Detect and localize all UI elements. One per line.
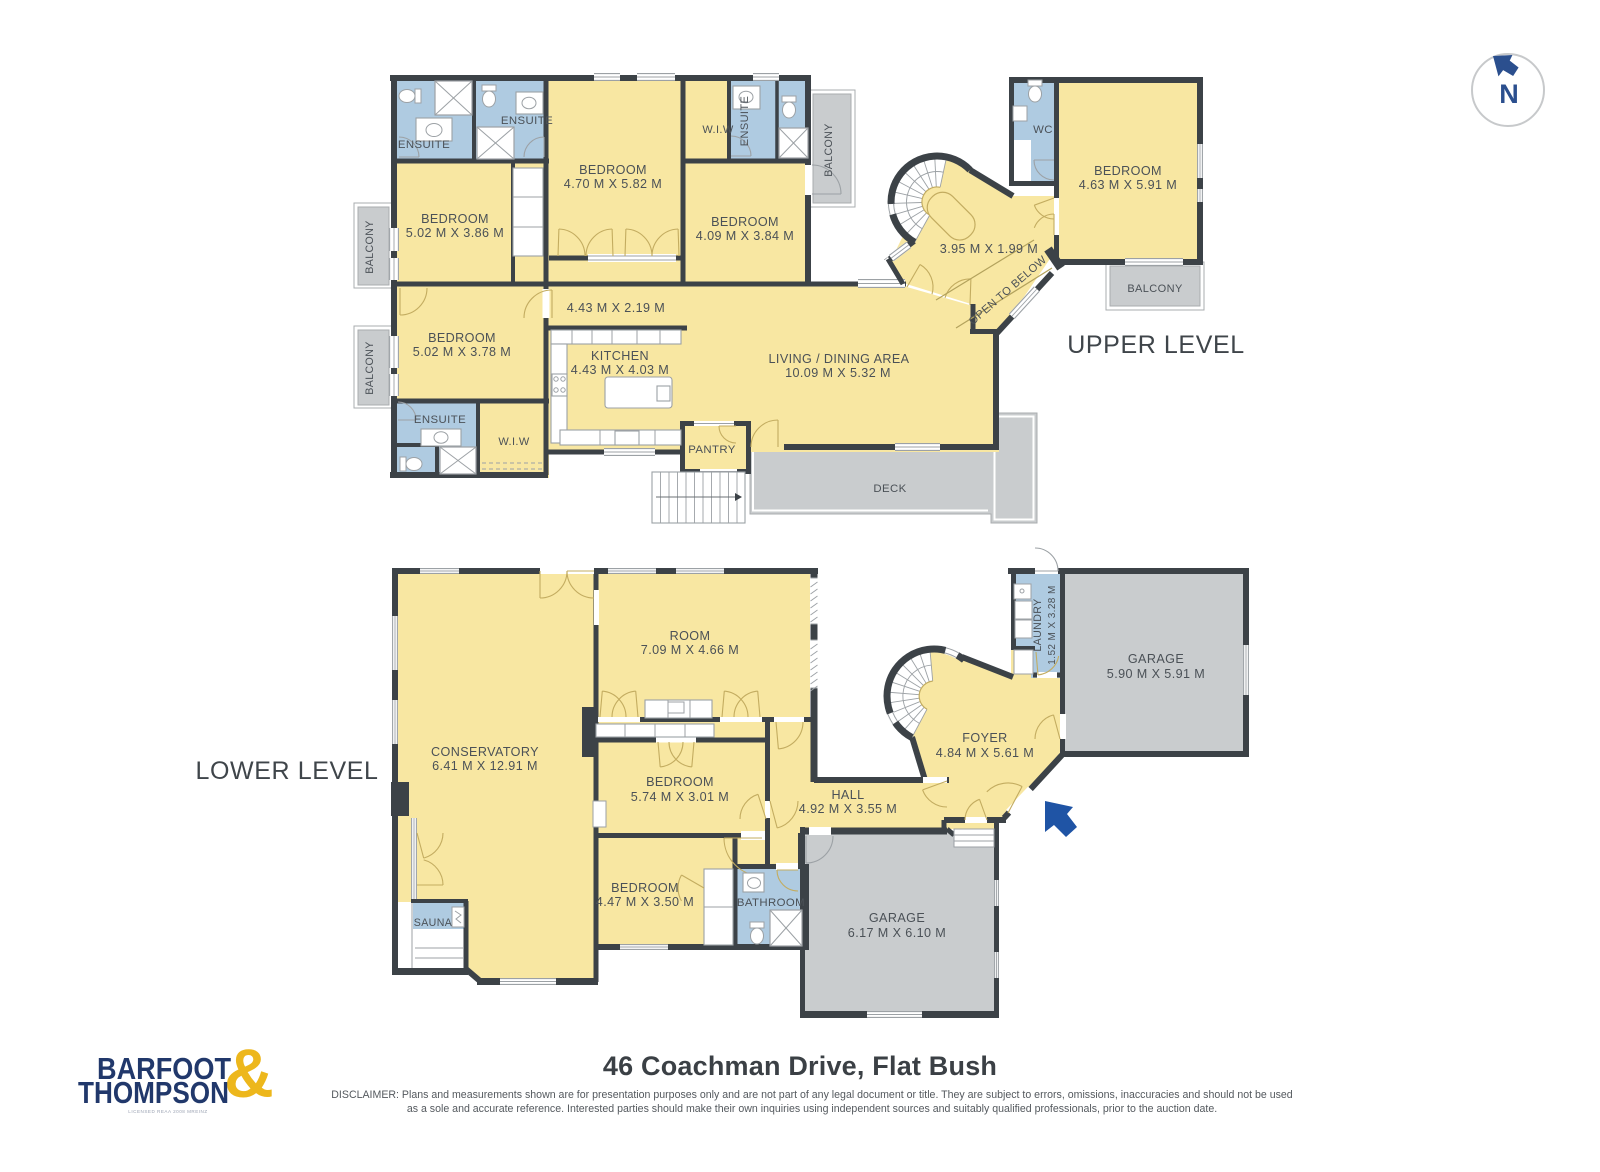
- svg-text:W.I.W: W.I.W: [702, 124, 734, 136]
- svg-text:KITCHEN: KITCHEN: [591, 349, 649, 363]
- svg-text:THOMPSON: THOMPSON: [78, 1075, 229, 1110]
- svg-text:HALL: HALL: [831, 788, 864, 802]
- svg-text:7.09 M X 4.66 M: 7.09 M X 4.66 M: [641, 643, 739, 657]
- svg-text:BEDROOM: BEDROOM: [428, 331, 496, 345]
- svg-text:BALCONY: BALCONY: [1127, 283, 1183, 295]
- svg-text:LOWER LEVEL: LOWER LEVEL: [195, 757, 378, 785]
- svg-text:BEDROOM: BEDROOM: [611, 881, 679, 895]
- svg-text:N: N: [1499, 79, 1519, 109]
- svg-text:4.43 M X 4.03 M: 4.43 M X 4.03 M: [571, 363, 669, 377]
- svg-text:6.17 M X 6.10 M: 6.17 M X 6.10 M: [848, 926, 946, 940]
- svg-text:4.47 M X 3.50 M: 4.47 M X 3.50 M: [596, 895, 694, 909]
- svg-text:BATHROOM: BATHROOM: [737, 897, 805, 909]
- svg-text:BALCONY: BALCONY: [364, 341, 376, 394]
- svg-text:BEDROOM: BEDROOM: [1094, 164, 1162, 178]
- svg-text:LICENSED REAA 2008 MREINZ: LICENSED REAA 2008 MREINZ: [128, 1109, 207, 1114]
- svg-text:PANTRY: PANTRY: [688, 444, 736, 456]
- svg-text:46 Coachman Drive, Flat Bush: 46 Coachman Drive, Flat Bush: [603, 1051, 997, 1081]
- svg-text:LIVING / DINING AREA: LIVING / DINING AREA: [769, 352, 910, 366]
- svg-text:ENSUITE: ENSUITE: [501, 115, 553, 127]
- svg-text:BEDROOM: BEDROOM: [711, 215, 779, 229]
- svg-text:DECK: DECK: [873, 483, 906, 495]
- svg-text:10.09 M X 5.32 M: 10.09 M X 5.32 M: [785, 366, 891, 380]
- svg-text:4.09 M X 3.84 M: 4.09 M X 3.84 M: [696, 229, 794, 243]
- svg-text:BEDROOM: BEDROOM: [579, 163, 647, 177]
- svg-text:BALCONY: BALCONY: [823, 123, 835, 176]
- svg-text:ENSUITE: ENSUITE: [414, 414, 466, 426]
- svg-text:GARAGE: GARAGE: [869, 911, 925, 925]
- svg-text:4.84 M X 5.61 M: 4.84 M X 5.61 M: [936, 746, 1034, 760]
- svg-text:6.41 M X 12.91 M: 6.41 M X 12.91 M: [432, 759, 538, 773]
- svg-text:SAUNA: SAUNA: [414, 917, 453, 929]
- svg-text:5.90 M X 5.91 M: 5.90 M X 5.91 M: [1107, 667, 1205, 681]
- svg-text:5.74 M X 3.01 M: 5.74 M X 3.01 M: [631, 790, 729, 804]
- svg-text:CONSERVATORY: CONSERVATORY: [431, 745, 539, 759]
- svg-text:BALCONY: BALCONY: [364, 220, 376, 273]
- svg-text:DISCLAIMER: Plans and measurem: DISCLAIMER: Plans and measurements shown…: [331, 1089, 1293, 1101]
- svg-text:W.I.W: W.I.W: [498, 436, 530, 448]
- svg-text:BEDROOM: BEDROOM: [421, 212, 489, 226]
- svg-text:3.95 M X 1.99 M: 3.95 M X 1.99 M: [940, 242, 1038, 256]
- svg-text:GARAGE: GARAGE: [1128, 652, 1184, 666]
- svg-text:LAUNDRY: LAUNDRY: [1032, 598, 1044, 651]
- svg-text:4.92 M X 3.55 M: 4.92 M X 3.55 M: [799, 802, 897, 816]
- svg-text:WC: WC: [1033, 124, 1053, 136]
- svg-text:ROOM: ROOM: [670, 629, 711, 643]
- svg-text:FOYER: FOYER: [962, 731, 1007, 745]
- svg-text:1.52 M X 3.28 M: 1.52 M X 3.28 M: [1047, 585, 1058, 664]
- svg-text:4.43 M X 2.19 M: 4.43 M X 2.19 M: [567, 301, 665, 315]
- svg-text:4.63 M X 5.91 M: 4.63 M X 5.91 M: [1079, 178, 1177, 192]
- svg-text:4.70 M X 5.82 M: 4.70 M X 5.82 M: [564, 177, 662, 191]
- svg-text:5.02 M X 3.78 M: 5.02 M X 3.78 M: [413, 345, 511, 359]
- svg-text:ENSUITE: ENSUITE: [739, 96, 751, 146]
- svg-text:5.02 M X 3.86 M: 5.02 M X 3.86 M: [406, 226, 504, 240]
- svg-text:BEDROOM: BEDROOM: [646, 775, 714, 789]
- svg-text:&: &: [224, 1035, 274, 1112]
- svg-text:ENSUITE: ENSUITE: [398, 139, 450, 151]
- svg-text:UPPER LEVEL: UPPER LEVEL: [1067, 331, 1245, 359]
- svg-text:as a sole and accurate referen: as a sole and accurate reference. Intere…: [407, 1103, 1217, 1115]
